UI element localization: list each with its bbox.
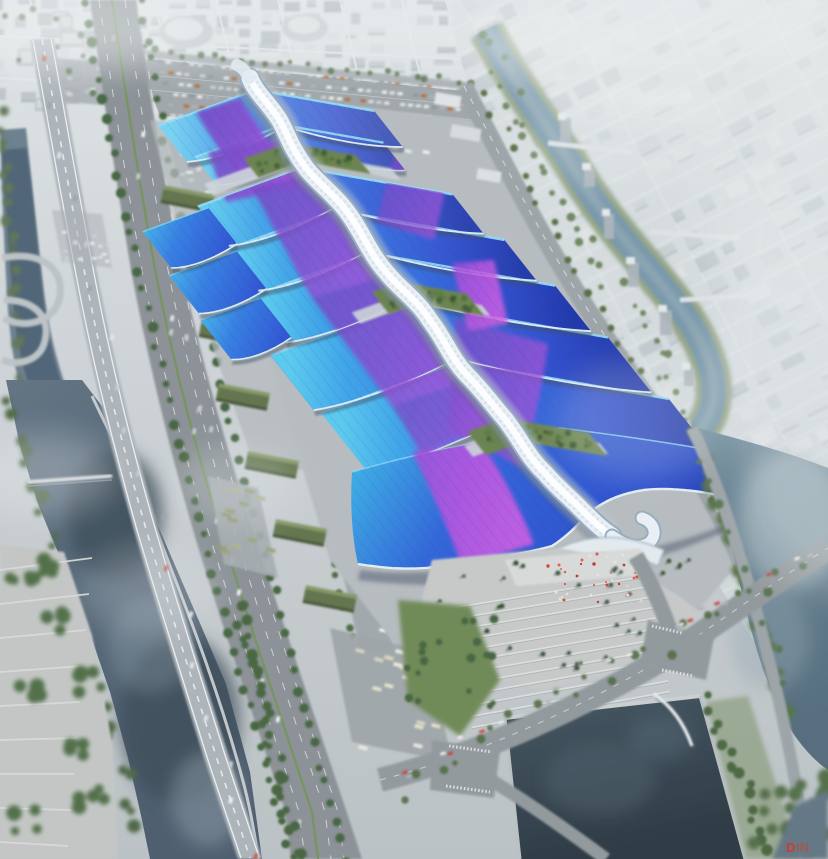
svg-text:D: D: [786, 840, 795, 855]
svg-text:IN: IN: [796, 840, 809, 855]
